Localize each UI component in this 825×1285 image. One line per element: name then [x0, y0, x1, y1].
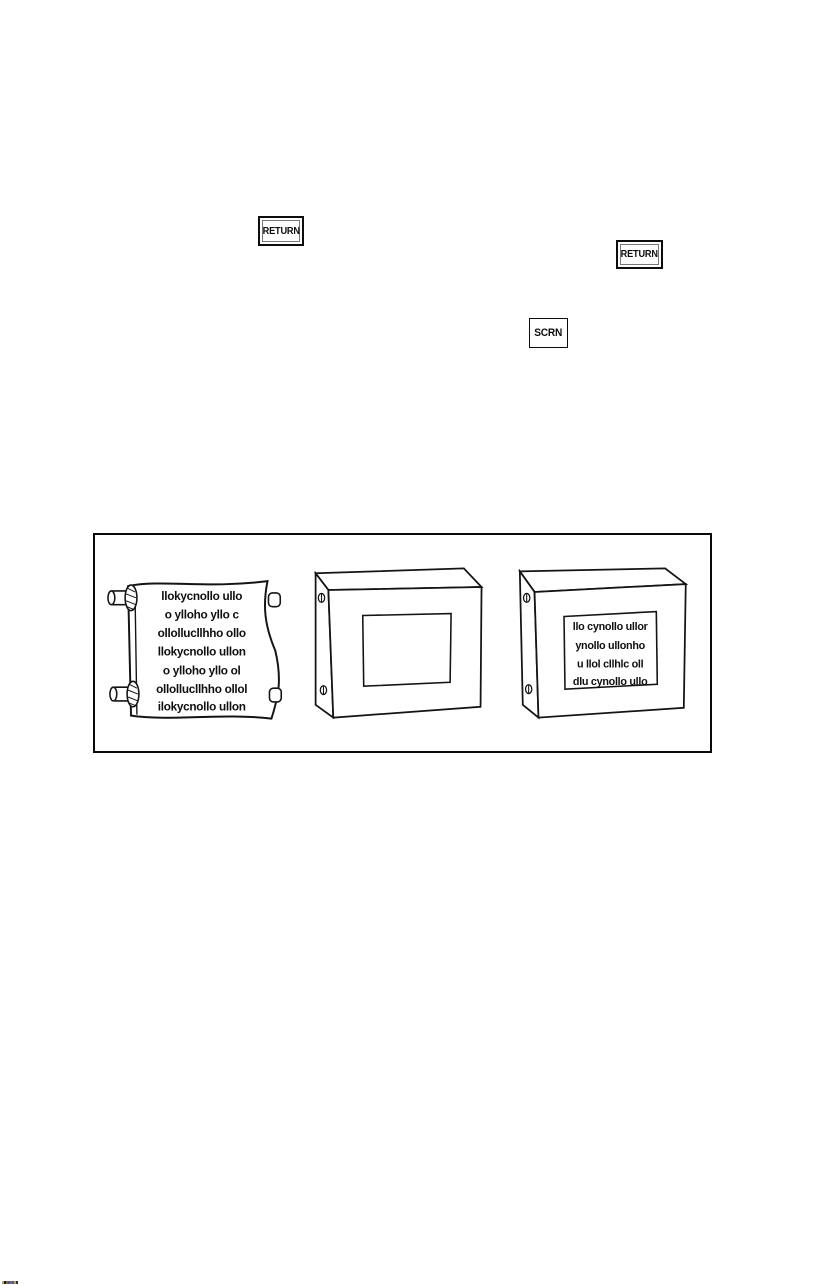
return-key-icon: RETURN	[258, 216, 304, 246]
empty-screen-drawing	[316, 568, 482, 717]
return-key-label: RETURN	[621, 249, 658, 260]
scrn-key-label: SCRN	[535, 327, 563, 339]
screen-text-line: ynollo ullonho	[575, 640, 645, 652]
screen-text-line: u llol cllhlc oll	[577, 659, 644, 671]
scroll-text-line: ilokycnollo ullon	[158, 701, 246, 714]
scrn-key-icon: SCRN	[529, 318, 568, 348]
scroll-text-line: o ylloho yllo ol	[163, 664, 241, 677]
figure-frame: llokycnollo ullo o ylloho yllo c ollollu…	[93, 533, 712, 753]
scroll-text-line: llokycnollo ullo	[161, 590, 242, 603]
scroll-text-line: ollollucllhho ollol	[156, 683, 247, 696]
color-strip-segment	[16, 1281, 18, 1284]
color-strip	[2, 1281, 18, 1284]
scroll-drawing: llokycnollo ullo o ylloho yllo c ollollu…	[108, 581, 281, 718]
return-key-icon: RETURN	[616, 240, 663, 269]
scanned-document-page: { "keys": { "return1": {"label": "RETURN…	[0, 0, 825, 1285]
text-screen-drawing: llo cynollo ullor ynollo ullonho u llol …	[520, 568, 686, 717]
scroll-text-line: ollollucllhho ollo	[158, 627, 246, 640]
scroll-text-line: llokycnollo ullon	[158, 646, 246, 659]
return-key-label: RETURN	[262, 226, 299, 237]
screen-text-line: llo cynollo ullor	[573, 621, 649, 633]
figure-illustration: llokycnollo ullo o ylloho yllo c ollollu…	[95, 535, 710, 751]
screen-text-line: dlu cynollo ullo	[573, 676, 648, 688]
scroll-text-line: o ylloho yllo c	[165, 608, 240, 621]
